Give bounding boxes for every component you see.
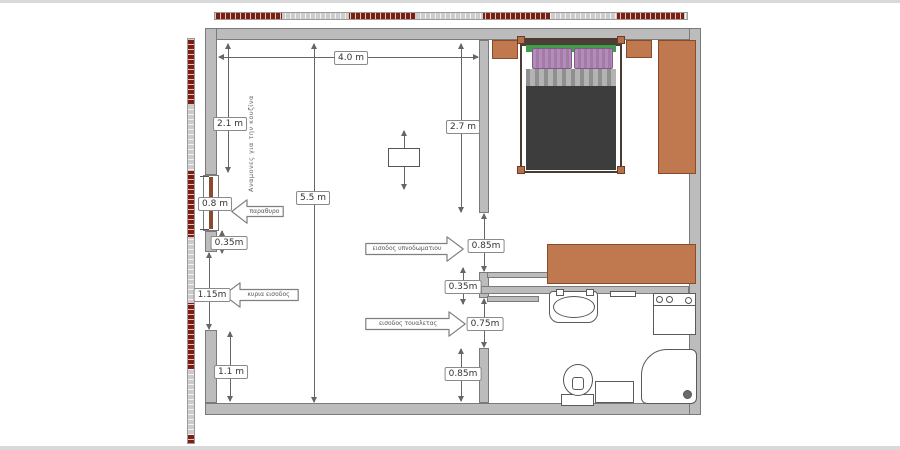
dim-label-bedroom-door: 0.85m	[468, 239, 505, 253]
bed-post-top-right	[617, 36, 625, 44]
dim-label-total-height: 5.5 m	[296, 191, 330, 205]
main-entrance-arrow-label: κυρια εισοδος	[239, 289, 298, 301]
dim-label-left-stub: 0.35m	[211, 236, 248, 250]
dim-label-top-width: 4.0 m	[334, 51, 368, 65]
wall-bottom	[205, 403, 701, 415]
washer-knob-2	[666, 296, 673, 303]
wall-interior-upper	[479, 40, 489, 213]
sink-basin	[553, 296, 595, 318]
toilet-flush	[572, 377, 584, 390]
sink-faucet-right	[586, 289, 594, 296]
scale-bar-left	[187, 38, 195, 444]
bed	[520, 38, 622, 173]
dim-label-left-lower: 1.1 m	[214, 365, 248, 379]
window-arrow: παραθυρο	[231, 199, 284, 224]
page-frame-bottom	[0, 446, 900, 450]
main-entrance-arrow: κυρια εισοδος	[223, 282, 299, 308]
nightstand-left	[492, 40, 518, 59]
dresser	[547, 244, 696, 284]
wall-top	[205, 28, 701, 40]
dim-label-bedroom-wall: 2.7 m	[446, 120, 480, 134]
dim-label-mid-stub: 0.35m	[445, 280, 482, 294]
wardrobe	[658, 40, 696, 174]
bed-blanket	[526, 86, 616, 170]
bed-pillow-left	[532, 48, 572, 69]
page-frame-top	[0, 0, 900, 3]
nightstand-right	[626, 40, 652, 58]
floor-plan: 4.0 m 2.1 m 2.7 m 5.5 m 0.8 m 0.35m 1.15…	[0, 0, 900, 450]
dim-line-total-height	[314, 44, 315, 402]
bedroom-entrance-arrow-label: εισοδος υπνοδωματιου	[367, 243, 447, 255]
bedroom-entrance-arrow: εισοδος υπνοδωματιου	[365, 236, 464, 262]
toilet-entrance-arrow: εισοδος τουαλετας	[365, 311, 466, 337]
sink-faucet-left	[556, 289, 564, 296]
dim-line-left-upper	[228, 44, 229, 172]
ledge-bedroom	[487, 272, 549, 278]
bed-sheet-fold	[526, 69, 616, 86]
window-arrow-label: παραθυρο	[246, 206, 283, 218]
dim-label-left-upper: 2.1 m	[213, 117, 247, 131]
washer-panel-line	[654, 305, 695, 306]
dim-label-window: 0.8 m	[198, 197, 232, 211]
washer-knob-3	[685, 297, 692, 304]
window-tick-bottom	[200, 229, 209, 230]
bed-post-top-left	[517, 36, 525, 44]
dim-label-main-entrance: 1.15m	[194, 288, 231, 302]
kitchen-note: Αναμονες για την κουζίνα	[247, 92, 255, 192]
bathmat	[595, 381, 634, 403]
bed-post-bottom-left	[517, 166, 525, 174]
bathroom-shelf	[610, 291, 636, 297]
bed-post-bottom-right	[617, 166, 625, 174]
shower-drain	[683, 390, 692, 399]
washer-knob-1	[656, 296, 663, 303]
ledge-bathroom	[487, 296, 539, 302]
toilet-entrance-arrow-label: εισοδος τουαλετας	[367, 318, 449, 330]
dim-label-lower-mid: 0.85m	[445, 367, 482, 381]
bed-pillow-right	[574, 48, 613, 69]
scale-bar-top	[214, 12, 688, 20]
dim-label-toilet-door: 0.75m	[467, 317, 504, 331]
center-annotation-box	[388, 148, 420, 167]
wall-left-upper	[205, 28, 217, 175]
window-tick-top	[200, 176, 209, 177]
